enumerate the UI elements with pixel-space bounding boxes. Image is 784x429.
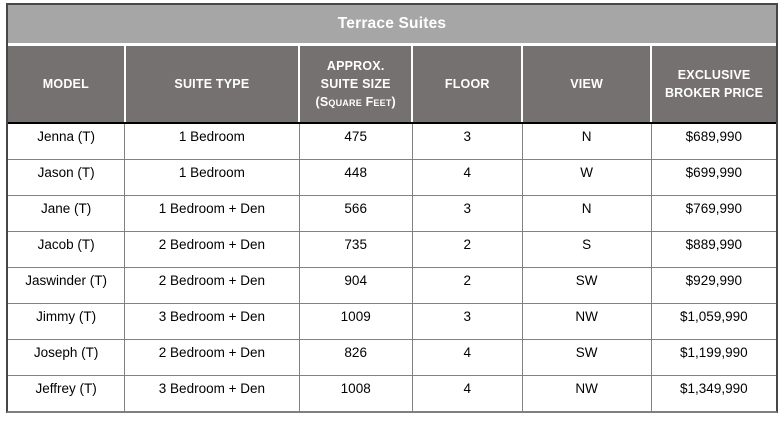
cell-suite_type: 3 Bedroom + Den	[125, 303, 299, 339]
cell-suite_type: 1 Bedroom + Den	[125, 195, 299, 231]
col-header-suite-type: SUITE TYPE	[125, 46, 299, 123]
cell-suite_size: 1008	[299, 375, 412, 411]
table-row: Jason (T)1 Bedroom4484W$699,990	[8, 159, 776, 195]
header-label: MODEL	[11, 75, 121, 93]
cell-floor: 4	[412, 159, 522, 195]
header-label: APPROX.	[303, 57, 408, 75]
cell-suite_type: 2 Bedroom + Den	[125, 339, 299, 375]
cell-price: $769,990	[651, 195, 776, 231]
cell-view: N	[522, 195, 651, 231]
header-label: VIEW	[526, 75, 647, 93]
cell-floor: 3	[412, 195, 522, 231]
table-row: Jenna (T)1 Bedroom4753N$689,990	[8, 123, 776, 159]
cell-model: Jason (T)	[8, 159, 125, 195]
cell-price: $1,349,990	[651, 375, 776, 411]
cell-floor: 2	[412, 231, 522, 267]
table-title: Terrace Suites	[8, 5, 776, 43]
terrace-suites-table: Terrace Suites MODEL SUITE TYPE APPROX. …	[6, 3, 778, 413]
cell-suite_size: 904	[299, 267, 412, 303]
cell-floor: 3	[412, 303, 522, 339]
cell-view: NW	[522, 375, 651, 411]
header-label-square-feet: (Square Feet)	[303, 93, 408, 111]
cell-view: S	[522, 231, 651, 267]
cell-model: Jaswinder (T)	[8, 267, 125, 303]
header-label: SUITE SIZE	[303, 75, 408, 93]
page-background: { "title": "Terrace Suites", "table": { …	[0, 3, 784, 429]
col-header-suite-size: APPROX. SUITE SIZE (Square Feet)	[299, 46, 412, 123]
table-row: Jeffrey (T)3 Bedroom + Den10084NW$1,349,…	[8, 375, 776, 411]
cell-floor: 2	[412, 267, 522, 303]
table-row: Joseph (T)2 Bedroom + Den8264SW$1,199,99…	[8, 339, 776, 375]
table-row: Jaswinder (T)2 Bedroom + Den9042SW$929,9…	[8, 267, 776, 303]
cell-model: Jeffrey (T)	[8, 375, 125, 411]
header-label: EXCLUSIVE	[655, 66, 773, 84]
cell-suite_type: 2 Bedroom + Den	[125, 267, 299, 303]
cell-price: $1,059,990	[651, 303, 776, 339]
cell-view: SW	[522, 267, 651, 303]
cell-suite_type: 1 Bedroom	[125, 159, 299, 195]
cell-price: $689,990	[651, 123, 776, 159]
suites-price-table: MODEL SUITE TYPE APPROX. SUITE SIZE (Squ…	[8, 46, 776, 411]
cell-view: N	[522, 123, 651, 159]
cell-suite_type: 3 Bedroom + Den	[125, 375, 299, 411]
cell-price: $889,990	[651, 231, 776, 267]
cell-floor: 4	[412, 375, 522, 411]
header-label: SUITE TYPE	[129, 75, 295, 93]
table-body: Jenna (T)1 Bedroom4753N$689,990Jason (T)…	[8, 123, 776, 411]
cell-view: SW	[522, 339, 651, 375]
cell-suite_size: 475	[299, 123, 412, 159]
col-header-view: VIEW	[522, 46, 651, 123]
cell-view: NW	[522, 303, 651, 339]
col-header-broker-price: EXCLUSIVE BROKER PRICE	[651, 46, 776, 123]
col-header-model: MODEL	[8, 46, 125, 123]
cell-suite_size: 1009	[299, 303, 412, 339]
table-row: Jacob (T)2 Bedroom + Den7352S$889,990	[8, 231, 776, 267]
cell-model: Jane (T)	[8, 195, 125, 231]
cell-suite_size: 826	[299, 339, 412, 375]
header-label: BROKER PRICE	[655, 84, 773, 102]
cell-suite_type: 1 Bedroom	[125, 123, 299, 159]
cell-model: Jacob (T)	[8, 231, 125, 267]
cell-model: Joseph (T)	[8, 339, 125, 375]
table-row: Jimmy (T)3 Bedroom + Den10093NW$1,059,99…	[8, 303, 776, 339]
col-header-floor: FLOOR	[412, 46, 522, 123]
cell-suite_size: 566	[299, 195, 412, 231]
cell-suite_size: 448	[299, 159, 412, 195]
cell-price: $1,199,990	[651, 339, 776, 375]
cell-price: $929,990	[651, 267, 776, 303]
cell-view: W	[522, 159, 651, 195]
table-header-row: MODEL SUITE TYPE APPROX. SUITE SIZE (Squ…	[8, 46, 776, 123]
cell-model: Jenna (T)	[8, 123, 125, 159]
cell-model: Jimmy (T)	[8, 303, 125, 339]
header-label: FLOOR	[416, 75, 518, 93]
cell-floor: 3	[412, 123, 522, 159]
cell-suite_type: 2 Bedroom + Den	[125, 231, 299, 267]
table-row: Jane (T)1 Bedroom + Den5663N$769,990	[8, 195, 776, 231]
cell-suite_size: 735	[299, 231, 412, 267]
cell-floor: 4	[412, 339, 522, 375]
cell-price: $699,990	[651, 159, 776, 195]
